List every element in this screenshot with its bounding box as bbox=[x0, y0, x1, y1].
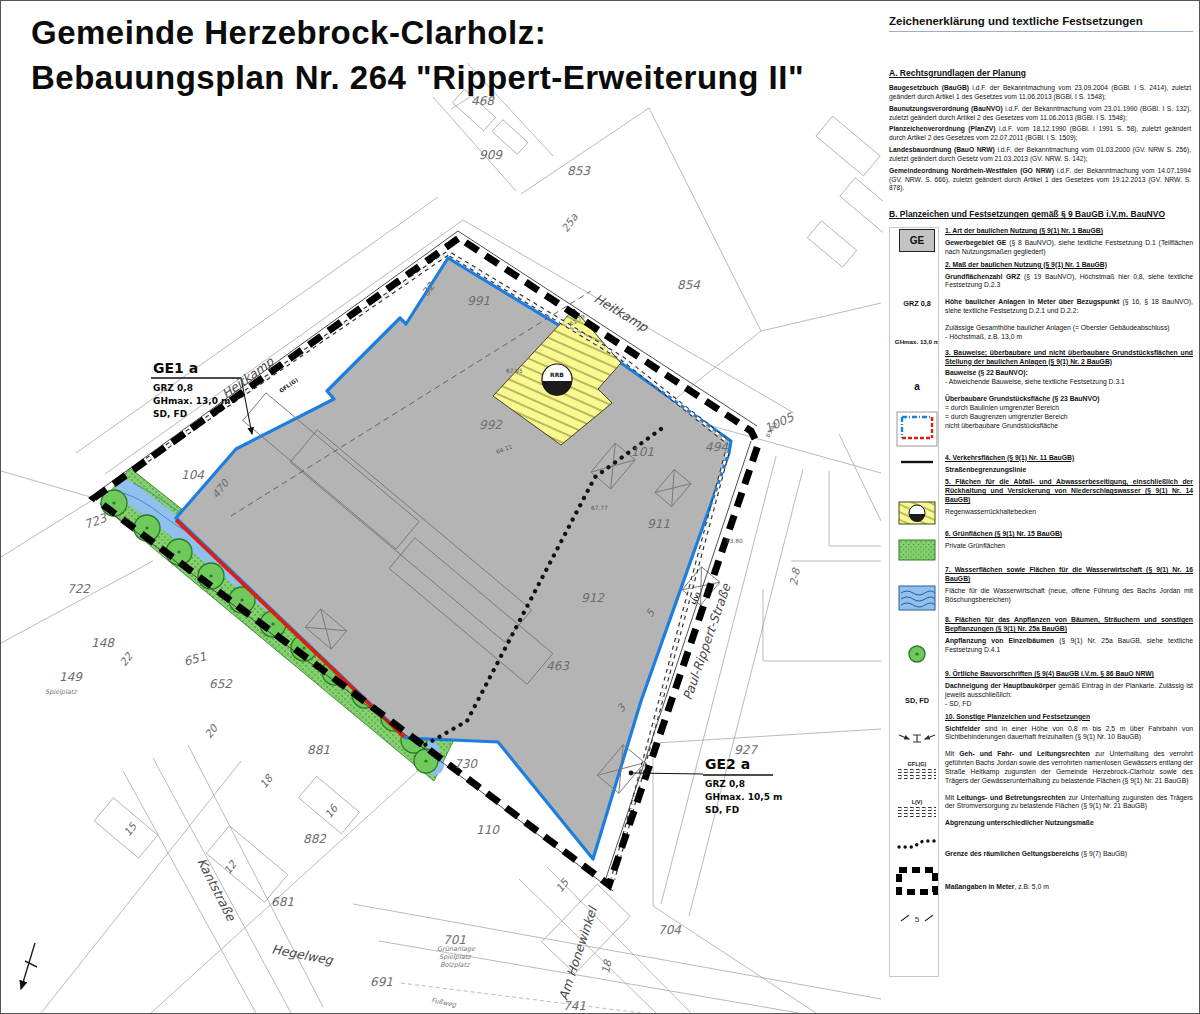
map-label: GE1 a bbox=[153, 360, 198, 376]
map-label: 25a bbox=[559, 211, 581, 235]
item-6-body: Private Grünflächen bbox=[945, 542, 1193, 551]
item-8-body: Anpflanzung von Einzelbäumen (§ 9(1) Nr.… bbox=[945, 637, 1193, 655]
item-10-gfl: Mit Geh- und Fahr- und Leitungsrechten z… bbox=[945, 750, 1193, 785]
map-label: 104 bbox=[181, 468, 204, 482]
item-3-bauweise: Bauweise (§ 22 BauNVO): bbox=[945, 369, 1193, 378]
map-label: 63.80 bbox=[726, 538, 743, 544]
map-label: Am Honewinkel bbox=[556, 904, 601, 1002]
map-label: GRZ 0,8 bbox=[705, 779, 745, 789]
item-10-abgrenzung: Abgrenzung unterschiedlicher Nutzungsmaß… bbox=[945, 819, 1193, 828]
item-3-heading: 3. Bauweise; überbaubare und nicht überb… bbox=[945, 349, 1193, 367]
map-label: 22 bbox=[117, 649, 135, 668]
item-8-heading: 8. Flächen für das Anpflanzen von Bäumen… bbox=[945, 616, 1193, 634]
map-label: 67.95 bbox=[506, 368, 523, 374]
map-label: 741 bbox=[563, 999, 586, 1013]
map-label: Heitkamp bbox=[591, 291, 651, 335]
map-label: 704 bbox=[658, 923, 681, 937]
map-label: Spielplatz bbox=[45, 688, 78, 696]
page-title: Gemeinde Herzebrock-Clarholz: Bebauungsp… bbox=[31, 11, 804, 100]
item-9-body: Dachneigung der Hauptbaukörper gemäß Ein… bbox=[945, 682, 1193, 700]
title-line2: Bebauungsplan Nr. 264 "Rippert-Erweiteru… bbox=[31, 56, 804, 101]
item-4-heading: 4. Verkehrsflächen (§ 9(1) Nr. 11 BauGB) bbox=[945, 454, 1193, 463]
map-label: GHmax. 13,0 m bbox=[153, 396, 230, 406]
legend-panel: Zeichenerklärung und textliche Festsetzu… bbox=[885, 1, 1199, 1013]
map-label: Bolzplatz bbox=[440, 961, 471, 969]
map-label: SD, FD bbox=[153, 409, 187, 419]
map-label: 911 bbox=[647, 517, 670, 531]
plan-map: RRB bbox=[1, 1, 883, 1013]
section-b-heading: B. Planzeichen und Festsetzungen gemäß §… bbox=[889, 209, 1195, 219]
map-label: 881 bbox=[307, 743, 330, 757]
map-label: 681 bbox=[271, 895, 294, 909]
item-10-grenze: Grenze des räumlichen Geltungsbereichs (… bbox=[945, 850, 1193, 859]
map-label: 909 bbox=[479, 148, 503, 162]
legend-title: Zeichenerklärung und textliche Festsetzu… bbox=[889, 15, 1193, 32]
item-5-heading: 5. Flächen für die Abfall- und Abwasserb… bbox=[945, 478, 1193, 504]
item-9-heading: 9. Örtliche Bauvorschriften (§ 9(4) BauG… bbox=[945, 670, 1193, 679]
item-10-sichtfelder: Sichtfelder sind in einer Höhe von 0,8 m… bbox=[945, 725, 1193, 743]
map-label: 15 bbox=[121, 819, 139, 838]
map-label: 882 bbox=[303, 832, 327, 846]
map-label: 16 bbox=[322, 801, 340, 820]
item-2-gh2: - Höchstmaß, z.B. 13,0 m bbox=[945, 333, 1193, 342]
map-label: GHmax. 10,5 m bbox=[705, 792, 782, 802]
law-go-nrw: Gemeindeordnung Nordrhein-Westfalen (GO … bbox=[889, 167, 1191, 194]
item-2-heading: 2. Maß der baulichen Nutzung (§ 9(1) Nr.… bbox=[945, 261, 1193, 270]
map-label: 18 bbox=[257, 771, 275, 790]
plan-sheet: RRB bbox=[0, 0, 1200, 1014]
map-label: Grünanlage bbox=[437, 945, 476, 953]
item-6-heading: 6. Grünflächen (§ 9(1) Nr. 15 BauGB) bbox=[945, 530, 1193, 539]
plan-map-svg: RRB bbox=[1, 1, 883, 1013]
map-label: 494 bbox=[705, 440, 728, 454]
law-baugb: Baugesetzbuch (BauGB) i.d.F. der Bekannt… bbox=[889, 84, 1191, 102]
map-label: 651 bbox=[182, 649, 208, 668]
item-10-lv: Mit Leitungs- und Betretungsrechten zur … bbox=[945, 794, 1193, 812]
item-2-grz: Grundflächenzahl GRZ (§ 19 BauNVO), Höch… bbox=[945, 273, 1193, 291]
map-label: 854 bbox=[677, 278, 700, 292]
rrb-symbol: RRB bbox=[542, 364, 572, 396]
section-a-heading: A. Rechtsgrundlagen der Planung bbox=[889, 68, 1195, 78]
item-4-body: Straßenbegrenzungslinie bbox=[945, 466, 1193, 475]
symbol-column-frame bbox=[889, 227, 939, 977]
legend-rows: GE 1. Art der baulichen Nutzung (§ 9(1) … bbox=[889, 227, 1199, 924]
map-label: 2-8 bbox=[787, 566, 802, 586]
map-label: GE2 a bbox=[705, 756, 750, 772]
map-label: 927 bbox=[734, 743, 758, 757]
map-label: 149 bbox=[59, 670, 83, 684]
map-label: Hegelweg bbox=[270, 941, 335, 968]
map-label: 101 bbox=[631, 445, 654, 459]
map-label: GFL(G) bbox=[278, 376, 299, 393]
map-label: 18 bbox=[599, 958, 613, 975]
map-label: 853 bbox=[567, 164, 591, 178]
map-label: 992 bbox=[479, 418, 503, 432]
map-label: 20 bbox=[202, 721, 220, 740]
map-label: 12 bbox=[221, 857, 239, 876]
map-label: Paul-Rippert-Straße bbox=[680, 580, 734, 701]
item-3-ueberbaubar: Überbaubare Grundstücksfläche (§ 23 BauN… bbox=[945, 395, 1193, 404]
map-label: 67.77 bbox=[591, 505, 608, 511]
item-7-heading: 7. Wasserflächen sowie Flächen für die W… bbox=[945, 566, 1193, 584]
map-label: GRZ 0,8 bbox=[153, 383, 193, 393]
map-label: 652 bbox=[209, 677, 233, 691]
rrb-symbol-label: RRB bbox=[550, 371, 564, 378]
item-5-body: Regenwasserrückhaltebecken bbox=[945, 508, 1193, 517]
law-baunvo: Baunutzungsverordnung (BauNVO) i.d.F. de… bbox=[889, 105, 1191, 123]
item-10-heading: 10. Sonstige Planzeichen und Festsetzung… bbox=[945, 713, 1193, 722]
map-label: 15 bbox=[553, 875, 571, 894]
item-2-hoehe: Höhe baulicher Anlagen in Meter über Bez… bbox=[945, 298, 1193, 316]
title-line1: Gemeinde Herzebrock-Clarholz: bbox=[31, 11, 804, 56]
map-label: 148 bbox=[91, 636, 115, 650]
map-label: 912 bbox=[581, 591, 605, 605]
map-label: 991 bbox=[467, 294, 490, 308]
law-bauo-nrw: Landesbauordnung (BauO NRW) i.d.F. der B… bbox=[889, 146, 1191, 164]
law-planzv: Planzeichenverordnung (PlanZV) i.d.F. vo… bbox=[889, 125, 1191, 143]
map-label: Spielplatz bbox=[439, 953, 472, 961]
map-label: 463 bbox=[546, 659, 570, 673]
map-label: 691 bbox=[370, 975, 393, 989]
map-label: SD, FD bbox=[705, 805, 739, 815]
item-1-body: Gewerbegebiet GE (§ 8 BauNVO), siehe tex… bbox=[945, 239, 1193, 257]
map-label: 730 bbox=[454, 757, 478, 771]
item-7-body: Fläche für die Wasserwirtschaft (neue, o… bbox=[945, 587, 1193, 605]
map-label: 722 bbox=[67, 582, 91, 596]
map-label: 110 bbox=[476, 823, 500, 837]
item-10-massangaben: Maßangaben in Meter, z.B. 5,0 m bbox=[945, 883, 1193, 892]
north-arrow-icon bbox=[21, 943, 37, 989]
item-2-gh1: Zulässige Gesamthöhe baulicher Anlagen (… bbox=[945, 324, 1193, 333]
item-1-heading: 1. Art der baulichen Nutzung (§ 9(1) Nr.… bbox=[945, 227, 1193, 236]
map-label: Fußweg bbox=[431, 996, 458, 1009]
